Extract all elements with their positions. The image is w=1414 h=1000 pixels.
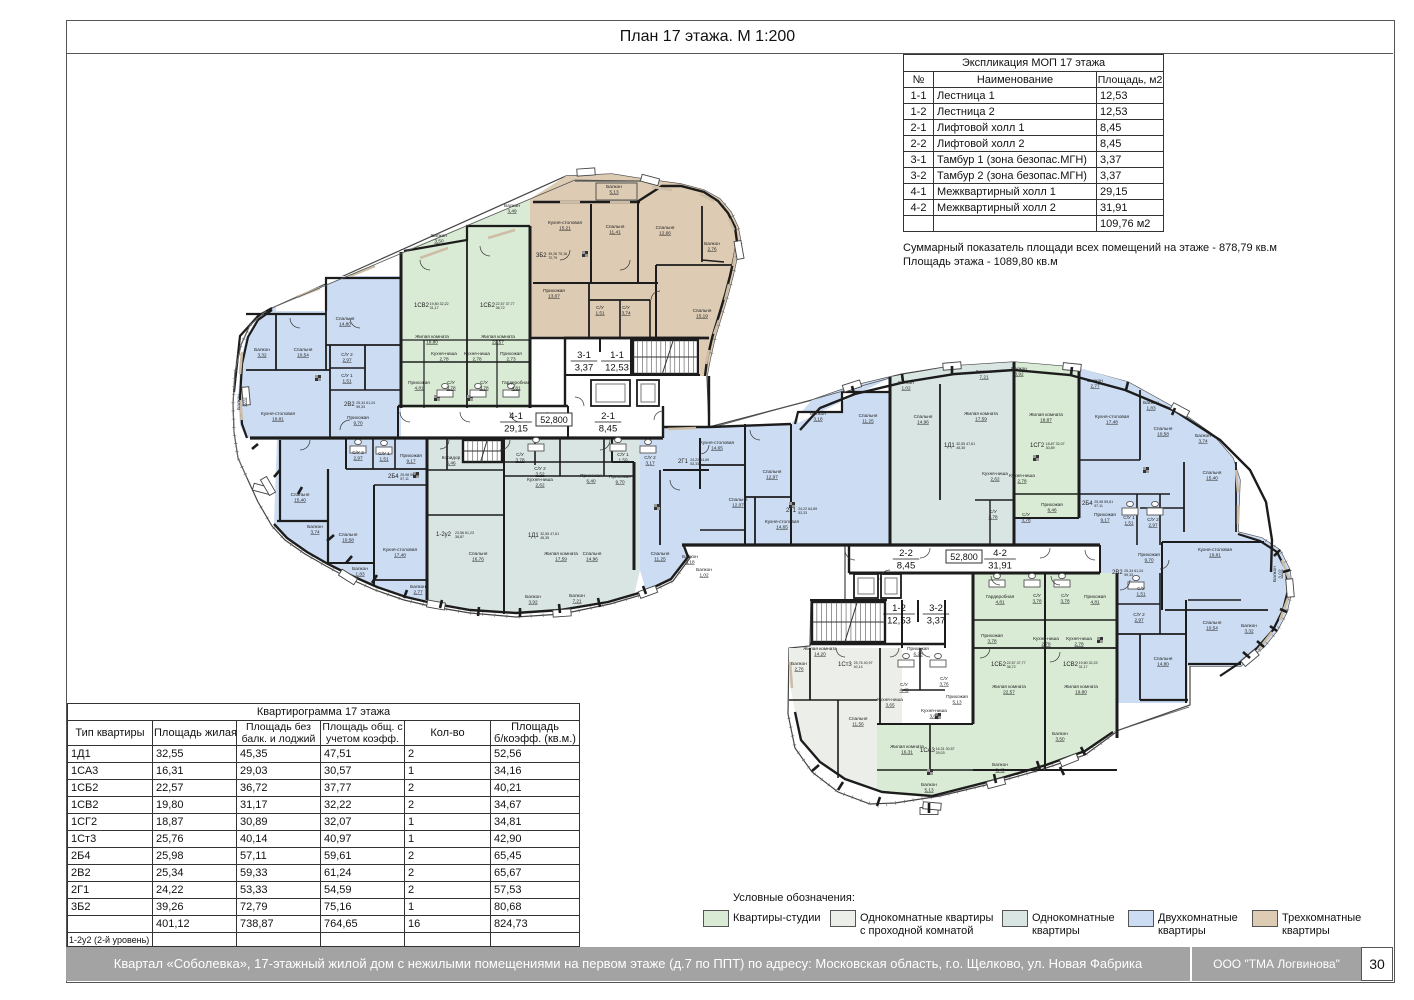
svg-text:1СГ2: 1СГ2 <box>1030 443 1045 449</box>
svg-text:17,59: 17,59 <box>975 417 987 422</box>
svg-text:2В2: 2В2 <box>1112 570 1123 576</box>
svg-text:Спальня: Спальня <box>1154 426 1173 431</box>
svg-text:Кухня-ниша: Кухня-ниша <box>921 708 947 713</box>
svg-text:2,78: 2,78 <box>1017 479 1027 484</box>
svg-text:Гардеробная: Гардеробная <box>986 594 1015 599</box>
svg-text:36,72: 36,72 <box>496 306 505 310</box>
svg-text:Спальня: Спальня <box>693 308 712 313</box>
svg-text:3-1: 3-1 <box>577 350 591 361</box>
svg-text:2Б4: 2Б4 <box>1082 501 1093 507</box>
svg-text:57,11: 57,11 <box>1094 504 1103 508</box>
svg-text:22,57: 22,57 <box>492 340 504 345</box>
svg-text:6,46: 6,46 <box>446 461 456 466</box>
svg-text:1,02: 1,02 <box>699 573 709 578</box>
svg-text:3,78: 3,78 <box>1032 599 1042 604</box>
svg-text:14,65: 14,65 <box>776 525 788 530</box>
svg-text:17,48: 17,48 <box>1106 420 1118 425</box>
svg-text:45,35: 45,35 <box>956 446 965 450</box>
svg-text:4-1: 4-1 <box>509 411 523 422</box>
svg-text:14,65: 14,65 <box>711 446 723 451</box>
svg-text:Жилая комната: Жилая комната <box>415 334 449 339</box>
svg-text:Жилая комната: Жилая комната <box>964 411 998 416</box>
svg-text:11,25: 11,25 <box>862 419 874 424</box>
svg-text:Спальня: Спальня <box>294 347 313 352</box>
svg-text:2,78: 2,78 <box>1041 642 1051 647</box>
svg-text:С/У 2: С/У 2 <box>1147 517 1159 522</box>
svg-text:4,81: 4,81 <box>511 386 521 391</box>
svg-text:Спальня: Спальня <box>859 413 878 418</box>
svg-text:3,83: 3,83 <box>929 714 939 719</box>
svg-text:Балкон: Балкон <box>1087 378 1103 383</box>
svg-text:10,54: 10,54 <box>1206 626 1218 631</box>
svg-text:1,51: 1,51 <box>379 457 389 462</box>
svg-text:Спальня: Спальня <box>339 532 358 537</box>
svg-text:22,57: 22,57 <box>1003 690 1015 695</box>
svg-text:С/У: С/У <box>989 509 997 514</box>
svg-text:Балкон: Балкон <box>704 241 720 246</box>
svg-text:С/У 2: С/У 2 <box>1133 612 1145 617</box>
svg-text:1-1: 1-1 <box>610 350 624 361</box>
svg-text:16,76: 16,76 <box>472 557 484 562</box>
svg-text:9,70: 9,70 <box>615 480 625 485</box>
svg-text:Балкон: Балкон <box>254 347 270 352</box>
svg-text:Спальня: Спальня <box>1203 470 1222 475</box>
svg-text:31,91: 31,91 <box>988 561 1012 572</box>
svg-text:Прихожая: Прихожая <box>500 351 522 356</box>
svg-text:Балкон: Балкон <box>791 661 807 666</box>
svg-text:19,80: 19,80 <box>1075 690 1087 695</box>
svg-text:19,81: 19,81 <box>272 417 284 422</box>
svg-text:Кухня-столовая: Кухня-столовая <box>261 411 295 416</box>
svg-text:2В2: 2В2 <box>344 402 355 408</box>
svg-text:59,33: 59,33 <box>356 405 365 409</box>
svg-text:Кухня-столовая: Кухня-столовая <box>700 440 734 445</box>
svg-text:Прихожая: Прихожая <box>543 288 565 293</box>
svg-text:С/У: С/У <box>516 452 524 457</box>
svg-text:11,41: 11,41 <box>609 230 621 235</box>
svg-text:Спальня: Спальня <box>583 551 602 556</box>
svg-text:29,15: 29,15 <box>504 424 528 435</box>
svg-text:Спальня: Спальня <box>651 551 670 556</box>
svg-text:38,87: 38,87 <box>455 535 464 539</box>
svg-text:3,37: 3,37 <box>575 363 594 374</box>
svg-text:Балкон: Балкон <box>1143 400 1159 405</box>
svg-text:2,97: 2,97 <box>1148 523 1158 528</box>
svg-text:1СВ2: 1СВ2 <box>1063 662 1079 668</box>
svg-text:С/У 2: С/У 2 <box>341 352 353 357</box>
svg-text:Спальня: Спальня <box>336 316 355 321</box>
svg-text:29,03: 29,03 <box>936 751 945 755</box>
svg-text:14,96: 14,96 <box>586 557 598 562</box>
svg-text:14,96: 14,96 <box>917 420 929 425</box>
svg-text:2,62: 2,62 <box>535 483 545 488</box>
svg-text:Прихожая: Прихожая <box>1094 512 1116 517</box>
svg-text:15,19: 15,19 <box>696 314 708 319</box>
svg-text:Прихожая: Прихожая <box>408 380 430 385</box>
svg-text:15,40: 15,40 <box>1206 476 1218 481</box>
svg-text:53,33: 53,33 <box>690 462 699 466</box>
svg-text:3,74: 3,74 <box>1198 439 1208 444</box>
svg-text:3,37: 3,37 <box>927 616 946 627</box>
svg-text:Балкон: Балкон <box>352 566 368 571</box>
svg-text:3,74: 3,74 <box>621 311 631 316</box>
svg-text:1,59: 1,59 <box>618 458 628 463</box>
svg-text:4,81: 4,81 <box>414 386 424 391</box>
svg-text:3,50: 3,50 <box>1055 737 1065 742</box>
svg-text:40,14: 40,14 <box>854 665 863 669</box>
svg-text:12,53: 12,53 <box>605 363 629 374</box>
svg-text:Кухня-столовая: Кухня-столовая <box>1095 414 1129 419</box>
svg-text:3,49: 3,49 <box>507 209 517 214</box>
svg-text:1Ст3: 1Ст3 <box>838 662 852 668</box>
svg-text:9,70: 9,70 <box>1144 558 1154 563</box>
svg-text:12,53: 12,53 <box>887 616 911 627</box>
svg-text:4,81: 4,81 <box>995 600 1005 605</box>
svg-text:13,07: 13,07 <box>548 294 560 299</box>
svg-text:3,18: 3,18 <box>685 560 695 565</box>
svg-text:1СБ2: 1СБ2 <box>480 303 496 309</box>
svg-text:19,80: 19,80 <box>426 340 438 345</box>
svg-text:3,52: 3,52 <box>535 472 545 477</box>
svg-text:Балкон: Балкон <box>569 593 585 598</box>
svg-text:5,13: 5,13 <box>952 700 962 705</box>
svg-text:2,97: 2,97 <box>342 358 352 363</box>
svg-text:3,32: 3,32 <box>1244 629 1254 634</box>
svg-text:2,97: 2,97 <box>1134 618 1144 623</box>
svg-text:17,48: 17,48 <box>394 553 406 558</box>
svg-text:14,80: 14,80 <box>339 322 351 327</box>
svg-text:Балкон: Балкон <box>1011 366 1027 371</box>
svg-text:С/У 1: С/У 1 <box>378 451 390 456</box>
svg-text:1-2: 1-2 <box>892 603 906 614</box>
svg-text:3Б2: 3Б2 <box>536 253 547 259</box>
svg-text:2-2: 2-2 <box>899 548 913 559</box>
svg-text:1,02: 1,02 <box>901 386 911 391</box>
svg-text:Кухня-столовая: Кухня-столовая <box>548 220 582 225</box>
svg-text:8,45: 8,45 <box>599 424 618 435</box>
svg-text:Балкон: Балкон <box>1195 433 1211 438</box>
svg-text:Кухня-столовая: Кухня-столовая <box>383 547 417 552</box>
svg-text:9,70: 9,70 <box>353 421 363 426</box>
svg-text:Жилая комната: Жилая комната <box>1029 412 1063 417</box>
svg-text:Спальня: Спальня <box>1203 620 1222 625</box>
svg-text:Спальня: Спальня <box>469 551 488 556</box>
svg-text:59,33: 59,33 <box>1124 573 1133 577</box>
svg-text:9,17: 9,17 <box>406 459 416 464</box>
svg-text:1,51: 1,51 <box>595 311 605 316</box>
svg-text:14,20: 14,20 <box>814 652 826 657</box>
svg-text:1,51: 1,51 <box>1124 521 1134 526</box>
svg-text:Спальня: Спальня <box>606 224 625 229</box>
svg-text:Балкон: Балкон <box>236 394 241 410</box>
svg-text:3,78: 3,78 <box>1021 518 1031 523</box>
svg-text:С/У 2: С/У 2 <box>352 450 364 455</box>
svg-text:Жилая комната: Жилая комната <box>544 551 578 556</box>
svg-text:3,50: 3,50 <box>434 239 444 244</box>
svg-text:С/У 2: С/У 2 <box>534 466 546 471</box>
svg-text:Кухня-ниша: Кухня-ниша <box>982 471 1008 476</box>
svg-text:4,81: 4,81 <box>1090 600 1100 605</box>
svg-text:2,62: 2,62 <box>990 477 1000 482</box>
svg-text:Прихожая: Прихожая <box>1041 502 1063 507</box>
svg-text:Спальня: Спальня <box>763 469 782 474</box>
svg-text:Спальня: Спальня <box>729 497 748 502</box>
svg-text:1СА3: 1СА3 <box>920 748 936 754</box>
svg-text:3,74: 3,74 <box>310 530 320 535</box>
svg-text:Прихожая: Прихожая <box>907 646 929 651</box>
svg-text:С/У 1: С/У 1 <box>617 452 629 457</box>
svg-text:15,40: 15,40 <box>294 498 306 503</box>
svg-text:2,76: 2,76 <box>707 247 717 252</box>
svg-text:5,13: 5,13 <box>609 190 619 195</box>
svg-text:1-2у2: 1-2у2 <box>436 532 452 538</box>
svg-text:7,21: 7,21 <box>979 375 989 380</box>
svg-text:Прихожая: Прихожая <box>981 633 1003 638</box>
svg-text:Прихожая: Прихожая <box>946 694 968 699</box>
svg-text:11,56: 11,56 <box>852 722 864 727</box>
svg-text:2,78: 2,78 <box>472 357 482 362</box>
svg-text:1Д1: 1Д1 <box>528 533 539 539</box>
svg-text:Спальня: Спальня <box>914 414 933 419</box>
svg-text:2Г1: 2Г1 <box>678 459 689 465</box>
svg-text:Балкон: Балкон <box>682 554 698 559</box>
svg-text:3,78: 3,78 <box>1060 599 1070 604</box>
svg-text:С/У: С/У <box>1061 593 1069 598</box>
svg-text:15,21: 15,21 <box>559 226 571 231</box>
svg-text:3,92: 3,92 <box>1014 372 1024 377</box>
svg-text:Кухня-столовая: Кухня-столовая <box>1198 547 1232 552</box>
svg-text:С/У: С/У <box>622 305 630 310</box>
svg-text:2,77: 2,77 <box>1090 384 1100 389</box>
svg-text:С/У: С/У <box>940 676 948 681</box>
svg-text:53,33: 53,33 <box>798 511 807 515</box>
svg-text:Балкон: Балкон <box>810 411 826 416</box>
svg-text:3,02: 3,02 <box>242 397 247 407</box>
svg-text:3,78: 3,78 <box>479 386 489 391</box>
svg-text:Кухня-ниша: Кухня-ниша <box>464 351 490 356</box>
svg-text:5,13: 5,13 <box>924 788 934 793</box>
svg-text:С/У: С/У <box>1033 593 1041 598</box>
svg-text:Спальня: Спальня <box>656 225 675 230</box>
svg-text:Прихожая: Прихожая <box>609 474 631 479</box>
svg-text:12,07: 12,07 <box>732 503 744 508</box>
svg-text:1,51: 1,51 <box>1136 592 1146 597</box>
svg-text:3,32: 3,32 <box>257 353 267 358</box>
svg-text:Спальня: Спальня <box>291 492 310 497</box>
svg-text:4-2: 4-2 <box>993 548 1007 559</box>
svg-text:52,800: 52,800 <box>950 552 978 562</box>
svg-text:4,45: 4,45 <box>899 688 909 693</box>
svg-text:С/У: С/У <box>447 380 455 385</box>
svg-text:Жилая комната: Жилая комната <box>1064 684 1098 689</box>
svg-text:Жилая комната: Жилая комната <box>481 334 515 339</box>
svg-text:Балкон: Балкон <box>307 524 323 529</box>
svg-text:12,66: 12,66 <box>659 231 671 236</box>
svg-text:Прихожая: Прихожая <box>400 453 422 458</box>
svg-text:1,83: 1,83 <box>1146 406 1156 411</box>
svg-text:С/У 2: С/У 2 <box>644 455 656 460</box>
svg-text:16,31: 16,31 <box>901 750 913 755</box>
svg-text:3,78: 3,78 <box>987 639 997 644</box>
svg-text:Балкон: Балкон <box>525 594 541 599</box>
svg-text:Кухня-ниша: Кухня-ниша <box>877 697 903 702</box>
svg-text:1СВ2: 1СВ2 <box>414 303 430 309</box>
svg-text:3,92: 3,92 <box>528 600 538 605</box>
svg-text:Гардеробная: Гардеробная <box>502 380 531 385</box>
svg-text:30,89: 30,89 <box>1046 446 1055 450</box>
svg-text:7,21: 7,21 <box>572 599 582 604</box>
svg-text:2Б4: 2Б4 <box>388 474 399 480</box>
svg-text:2,97: 2,97 <box>353 456 363 461</box>
svg-text:18,87: 18,87 <box>1040 418 1052 423</box>
svg-text:С/У: С/У <box>596 305 604 310</box>
svg-text:С/У 1: С/У 1 <box>341 373 353 378</box>
svg-text:10,54: 10,54 <box>297 353 309 358</box>
svg-text:Балкон: Балкон <box>921 782 937 787</box>
svg-text:Балкон: Балкон <box>976 369 992 374</box>
svg-text:2,77: 2,77 <box>413 590 423 595</box>
svg-text:Кухня-ниша: Кухня-ниша <box>1066 636 1092 641</box>
svg-text:Кухня-ниша: Кухня-ниша <box>1033 636 1059 641</box>
svg-text:С/У: С/У <box>1137 586 1145 591</box>
svg-text:Жилая комната: Жилая комната <box>992 684 1026 689</box>
svg-text:С/У 1: С/У 1 <box>1123 515 1135 520</box>
svg-text:Балкон: Балкон <box>1241 623 1257 628</box>
svg-text:Балкон: Балкон <box>992 762 1008 767</box>
svg-text:3,17: 3,17 <box>645 461 655 466</box>
svg-text:Спальня: Спальня <box>1154 656 1173 661</box>
svg-text:3,65: 3,65 <box>885 703 895 708</box>
svg-text:2-1: 2-1 <box>601 411 615 422</box>
svg-text:Прихожая: Прихожая <box>1084 594 1106 599</box>
svg-text:3,18: 3,18 <box>813 417 823 422</box>
svg-text:Балкон: Балкон <box>696 567 712 572</box>
svg-text:6,28: 6,28 <box>913 652 923 657</box>
svg-text:19,81: 19,81 <box>1209 553 1221 558</box>
svg-text:Кухня-ниша: Кухня-ниша <box>1009 473 1035 478</box>
svg-text:31,17: 31,17 <box>1079 665 1088 669</box>
svg-text:14,80: 14,80 <box>1157 662 1169 667</box>
svg-text:72,79: 72,79 <box>548 256 557 260</box>
svg-text:Кухня-столовая: Кухня-столовая <box>765 519 799 524</box>
svg-text:Прихожая: Прихожая <box>1138 552 1160 557</box>
svg-text:2,78: 2,78 <box>439 357 449 362</box>
svg-text:2,78: 2,78 <box>1074 642 1084 647</box>
svg-text:3,78: 3,78 <box>988 515 998 520</box>
svg-text:3,49: 3,49 <box>995 768 1005 773</box>
svg-text:С/У: С/У <box>900 682 908 687</box>
svg-text:Балкон: Балкон <box>898 380 914 385</box>
svg-text:6,40: 6,40 <box>586 479 596 484</box>
svg-text:52,800: 52,800 <box>540 415 568 425</box>
svg-text:3,78: 3,78 <box>515 458 525 463</box>
svg-text:3,78: 3,78 <box>446 386 456 391</box>
svg-text:8,45: 8,45 <box>897 561 916 572</box>
svg-text:10,58: 10,58 <box>342 538 354 543</box>
svg-text:2Г1: 2Г1 <box>786 508 797 514</box>
svg-text:2,73: 2,73 <box>506 357 516 362</box>
svg-text:С/У: С/У <box>1022 512 1030 517</box>
svg-text:Балкон: Балкон <box>606 184 622 189</box>
svg-text:11,25: 11,25 <box>654 557 666 562</box>
svg-text:12,97: 12,97 <box>766 475 778 480</box>
svg-text:Кухня-ниша: Кухня-ниша <box>431 351 457 356</box>
svg-text:3-2: 3-2 <box>929 603 943 614</box>
svg-text:9,17: 9,17 <box>1100 518 1110 523</box>
svg-text:8,46: 8,46 <box>1047 508 1057 513</box>
svg-text:3,76: 3,76 <box>939 682 949 687</box>
svg-text:36,72: 36,72 <box>1007 665 1016 669</box>
svg-text:Коридор: Коридор <box>442 455 461 460</box>
svg-text:Балкон: Балкон <box>504 203 520 208</box>
svg-text:Прихожая: Прихожая <box>347 415 369 420</box>
svg-text:1Д1: 1Д1 <box>944 443 955 449</box>
svg-text:45,35: 45,35 <box>540 536 549 540</box>
svg-text:Балкон: Балкон <box>1052 731 1068 736</box>
svg-text:1,83: 1,83 <box>355 572 365 577</box>
svg-text:1,51: 1,51 <box>342 379 352 384</box>
svg-text:31,17: 31,17 <box>430 306 439 310</box>
svg-text:10,58: 10,58 <box>1157 432 1169 437</box>
svg-text:Прихожая: Прихожая <box>580 473 602 478</box>
svg-text:Спальня: Спальня <box>849 716 868 721</box>
svg-text:Балкон: Балкон <box>1272 566 1277 582</box>
svg-text:Кухня-ниша: Кухня-ниша <box>527 477 553 482</box>
svg-text:Балкон: Балкон <box>431 233 447 238</box>
svg-text:Жилая комната: Жилая комната <box>803 646 837 651</box>
svg-text:2,76: 2,76 <box>794 667 804 672</box>
svg-text:3,02: 3,02 <box>1278 569 1283 579</box>
svg-text:17,59: 17,59 <box>555 557 567 562</box>
svg-text:57,11: 57,11 <box>400 477 409 481</box>
svg-text:Балкон: Балкон <box>410 584 426 589</box>
svg-text:1СБ2: 1СБ2 <box>991 662 1007 668</box>
svg-text:С/У: С/У <box>480 380 488 385</box>
